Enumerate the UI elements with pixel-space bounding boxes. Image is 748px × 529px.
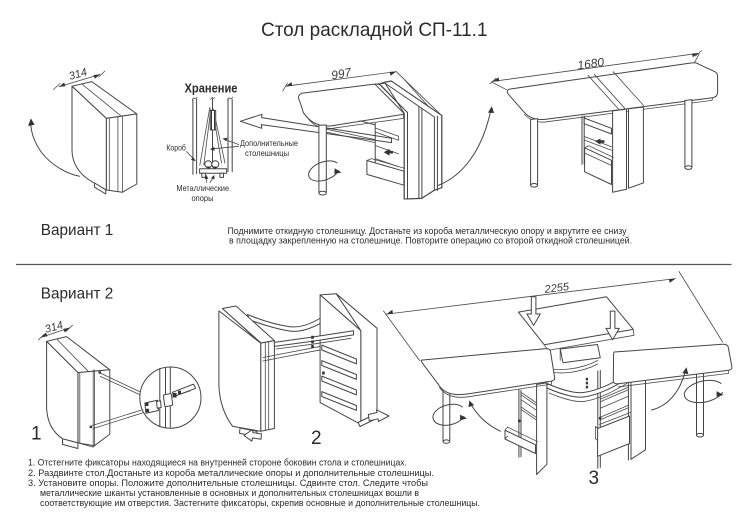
svg-text:1: 1 [31,424,42,445]
svg-text:в площадку закрепленную на сто: в площадку закрепленную на столешнице. П… [229,236,632,247]
svg-text:опоры: опоры [192,193,214,203]
svg-text:соответствующие им отверстия.: соответствующие им отверстия. Застегните… [40,498,480,508]
svg-text:3: 3 [589,468,600,489]
svg-text:Стол раскладной СП-11.1: Стол раскладной СП-11.1 [261,19,488,41]
svg-text:Хранение: Хранение [185,82,238,96]
svg-text:столешницы: столешницы [245,148,289,158]
svg-text:Короб: Короб [166,142,186,152]
svg-text:Вариант 2: Вариант 2 [41,286,114,303]
svg-text:Дополнительные: Дополнительные [240,138,298,148]
svg-text:2. Раздвинте стол.Достаньте и: 2. Раздвинте стол.Достаньте из короба ме… [28,468,434,478]
svg-text:3. Установите опоры. Положи: 3. Установите опоры. Положите дополнител… [28,478,428,488]
svg-text:Вариант 1: Вариант 1 [41,222,114,239]
svg-text:2: 2 [311,428,322,449]
svg-text:металлические шканты установ: металлические шканты установленные в осн… [40,488,419,498]
svg-text:Металлические: Металлические [177,183,230,193]
svg-text:1. Отстегните фиксаторы находя: 1. Отстегните фиксаторы находящиеся на в… [28,458,407,468]
